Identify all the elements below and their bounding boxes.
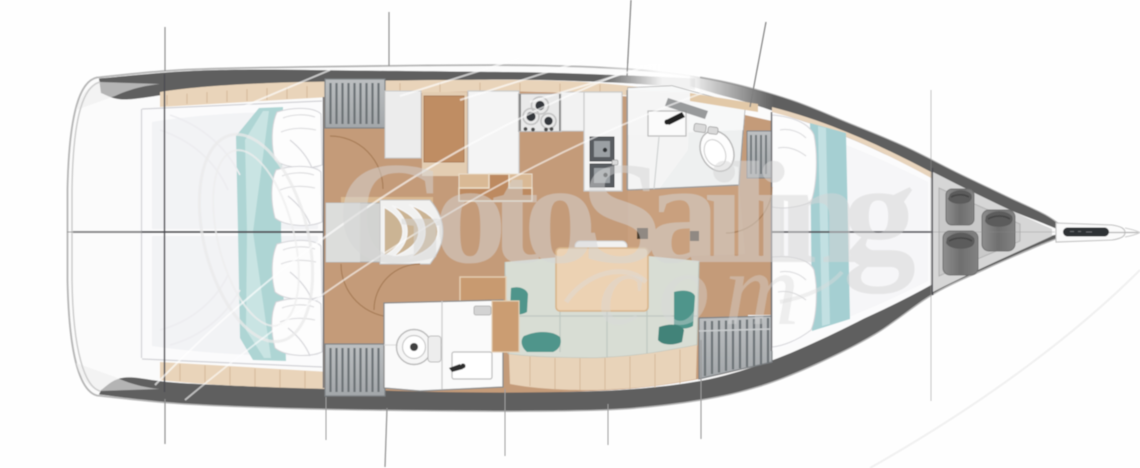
svg-text:com: com bbox=[598, 232, 813, 347]
